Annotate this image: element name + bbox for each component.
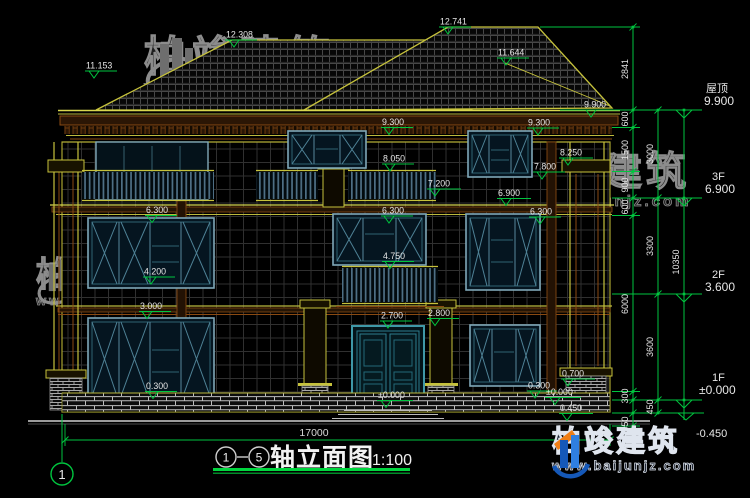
svg-text:9.300: 9.300	[528, 118, 550, 128]
dim-text: 3300	[645, 236, 655, 256]
elevation-marker: 11.153	[85, 61, 117, 79]
dim-text: 600	[620, 199, 630, 214]
dim-text: 2841	[620, 59, 630, 79]
svg-text:±0.000: ±0.000	[378, 390, 405, 400]
svg-text:12.308: 12.308	[226, 30, 253, 40]
svg-text:±0.000: ±0.000	[546, 387, 573, 397]
title-axis-a: 1	[223, 451, 230, 465]
svg-text:9.900: 9.900	[584, 100, 606, 110]
svg-text:7.800: 7.800	[534, 162, 556, 172]
svg-text:3.000: 3.000	[140, 301, 162, 311]
svg-text:4.750: 4.750	[383, 251, 405, 261]
ground-line	[28, 421, 650, 424]
dim-text: 3600	[645, 337, 655, 357]
svg-text:4.200: 4.200	[144, 267, 166, 277]
bottom-annotation: 1 17000 1 5 轴立面图 1:100	[51, 414, 614, 485]
svg-text:9.300: 9.300	[382, 117, 404, 127]
dim-text: 300	[620, 388, 630, 403]
svg-text:2.800: 2.800	[428, 308, 450, 318]
svg-text:12.741: 12.741	[440, 17, 467, 27]
floor-elev: -0.450	[696, 428, 727, 440]
dim-text: 3000	[645, 144, 655, 164]
dim-text: 1500	[620, 140, 630, 160]
svg-text:6.300: 6.300	[530, 207, 552, 217]
elevation-canvas: 11.153 12.308 12.741 11.644 9.900 9.300 …	[0, 0, 750, 498]
drawing-scale: 1:100	[372, 452, 412, 469]
drawing-title: 轴立面图	[270, 443, 374, 472]
floor-elev: 6.900	[705, 182, 735, 196]
svg-text:8.250: 8.250	[560, 148, 582, 158]
floor-labels: 屋顶 9.900 3F 6.900 2F 3.600 1F ±0.000 -0.…	[696, 82, 736, 440]
dim-text: 450	[645, 399, 655, 414]
floor-elev: 3.600	[705, 280, 735, 294]
brand-logo-colored: 柏竣建筑 www.baijunjz.com	[552, 428, 696, 472]
axis-bubble-number: 1	[58, 467, 65, 482]
base-brick-band	[62, 393, 610, 412]
svg-text:11.644: 11.644	[498, 48, 524, 58]
svg-text:11.153: 11.153	[86, 61, 112, 71]
floor-elev: 9.900	[704, 94, 734, 108]
dim-text: 600	[620, 111, 630, 126]
balcony-railing-3f	[82, 171, 436, 201]
brand-logo-icon	[552, 428, 590, 482]
dim-text: 900	[620, 177, 630, 192]
svg-text:8.050: 8.050	[383, 154, 405, 164]
floor-elev: ±0.000	[699, 383, 736, 397]
svg-text:6.300: 6.300	[146, 205, 168, 215]
window-2f-right	[466, 214, 540, 290]
window-2f-center	[333, 214, 426, 265]
svg-text:6.300: 6.300	[382, 206, 404, 216]
cad-elevation-drawing: 柏竣建筑 www.baijunjz.com 柏竣建筑 www.baijunjz.…	[0, 0, 750, 498]
svg-text:0.450: 0.450	[560, 403, 582, 413]
window-3f-right	[468, 131, 532, 177]
svg-text:0.300: 0.300	[146, 381, 168, 391]
balcony-railing-2f	[336, 267, 444, 307]
dim-text: 10350	[671, 249, 681, 274]
svg-text:7.200: 7.200	[428, 179, 450, 189]
svg-text:2.700: 2.700	[381, 311, 403, 321]
total-width-dim: 17000	[299, 427, 328, 439]
window-1f-right	[470, 325, 540, 386]
title-axis-b: 5	[256, 451, 263, 465]
svg-text:6.900: 6.900	[498, 188, 520, 198]
dim-text: 6000	[620, 294, 630, 314]
svg-text:0.700: 0.700	[562, 369, 584, 379]
window-3f-center	[288, 131, 366, 168]
